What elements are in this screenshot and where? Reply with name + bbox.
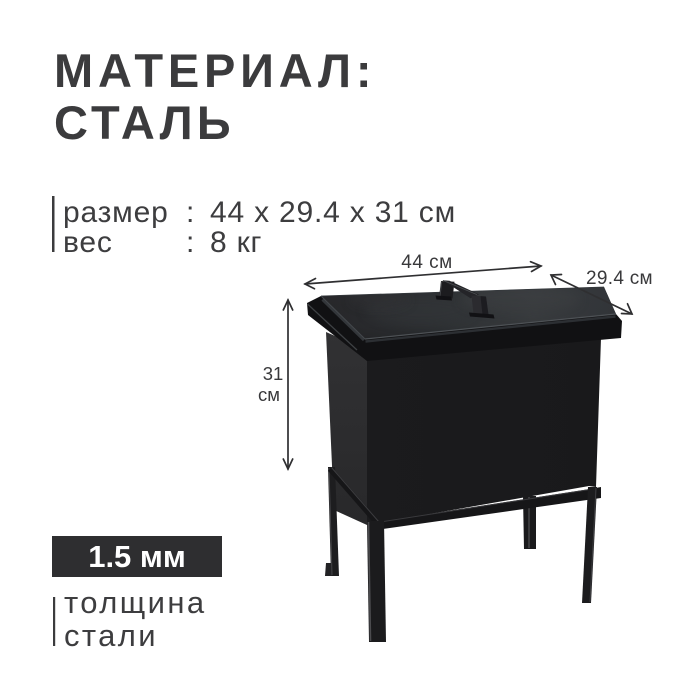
svg-text::: :	[186, 226, 195, 259]
svg-text:1.5 мм: 1.5 мм	[88, 539, 186, 574]
svg-text:СТАЛЬ: СТАЛЬ	[54, 96, 235, 149]
svg-text:8 кг: 8 кг	[210, 226, 262, 259]
svg-text:см: см	[258, 384, 280, 405]
svg-text:размер: размер	[63, 196, 169, 229]
svg-text::: :	[186, 196, 195, 229]
svg-text:толщина: толщина	[64, 585, 206, 620]
svg-text:МАТЕРИАЛ:: МАТЕРИАЛ:	[54, 44, 376, 97]
svg-text:44 х 29.4 х 31 см: 44 х 29.4 х 31 см	[210, 196, 456, 229]
svg-text:31: 31	[263, 363, 284, 384]
svg-text:вес: вес	[63, 226, 113, 259]
svg-text:стали: стали	[64, 618, 158, 653]
svg-text:44 см: 44 см	[401, 252, 452, 273]
svg-text:29.4 см: 29.4 см	[586, 268, 653, 289]
